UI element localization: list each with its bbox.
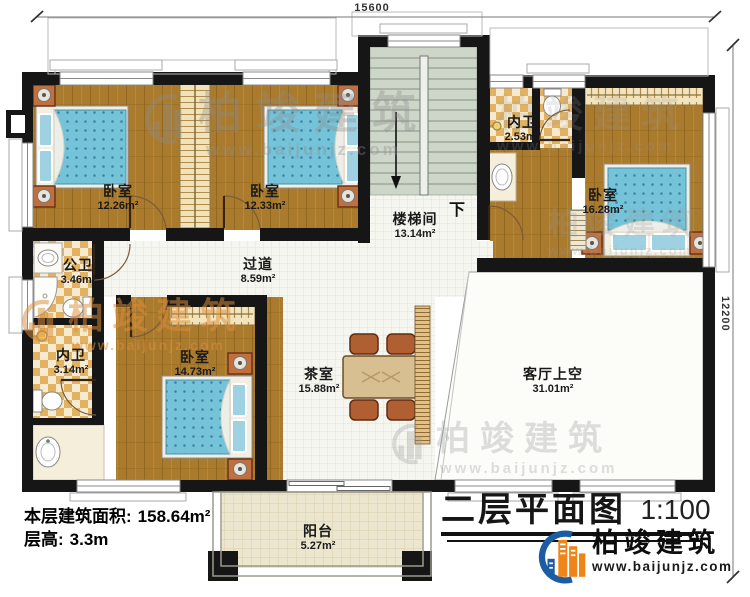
toilet-tank [33, 390, 42, 412]
vanity-sw [36, 437, 60, 467]
shower-head-icon [37, 331, 47, 341]
dresser-e [570, 210, 586, 250]
right-dimension-label: 12200 [719, 296, 731, 332]
brand-name: 柏竣建筑 [592, 527, 733, 559]
floor-height-line: 层高:3.3m [24, 528, 210, 551]
balcony-floor [222, 492, 422, 568]
wall [490, 142, 534, 150]
sink [38, 250, 58, 266]
stair-direction-label: 下 [449, 196, 465, 220]
page-title: 二层平面图 [441, 490, 626, 530]
wall [116, 295, 131, 307]
toilet [42, 392, 62, 410]
bed-e [604, 164, 690, 256]
toilet-tank [83, 297, 92, 320]
wall [572, 80, 585, 178]
bath-ensuite-n-floor [490, 88, 532, 142]
wall [255, 295, 267, 480]
bed-sw [162, 376, 252, 458]
brand-logo: 柏竣建筑 www.baijunjz.com [534, 527, 733, 587]
wall [260, 228, 360, 241]
top-dimension-label: 15600 [340, 2, 404, 14]
void-railing [415, 306, 430, 444]
wall [477, 258, 715, 272]
tearoom-console [267, 297, 283, 480]
living-void-area [435, 272, 703, 480]
bed-nw [36, 106, 128, 188]
stair-handrail [420, 56, 428, 195]
floor-height-label: 层高: [24, 530, 64, 549]
bed-n [264, 106, 359, 188]
brand-url: www.baijunjz.com [592, 559, 733, 575]
drawing-title-block: 二层平面图 1:100 [441, 490, 711, 530]
sink [492, 164, 512, 190]
floor-plan-page: 15600 12200 卧室 12.26m² 卧室 12.33m² 楼梯间 13… [0, 0, 750, 597]
floor-area-label: 本层建筑面积: [24, 507, 132, 526]
wall [167, 295, 267, 307]
wall [166, 228, 224, 241]
drawing-scale: 1:100 [640, 490, 710, 530]
wall [33, 418, 104, 425]
toilet [63, 299, 83, 317]
sliding-door [287, 480, 392, 492]
wall [22, 228, 130, 241]
brand-logo-icon [534, 527, 588, 587]
floor-height-value: 3.3m [70, 530, 109, 549]
stairs [370, 47, 477, 195]
floor-area-value: 158.64m² [138, 507, 211, 526]
shower-head-icon [493, 122, 501, 130]
wall [358, 35, 370, 243]
floor-info-block: 本层建筑面积:158.64m² 层高:3.3m [24, 505, 210, 551]
vanity-ne [489, 153, 516, 201]
wall [532, 80, 540, 150]
wall [33, 318, 92, 325]
hallway-floor [104, 241, 493, 297]
toilet-tank [544, 89, 561, 96]
floor-area-line: 本层建筑面积:158.64m² [24, 505, 210, 528]
